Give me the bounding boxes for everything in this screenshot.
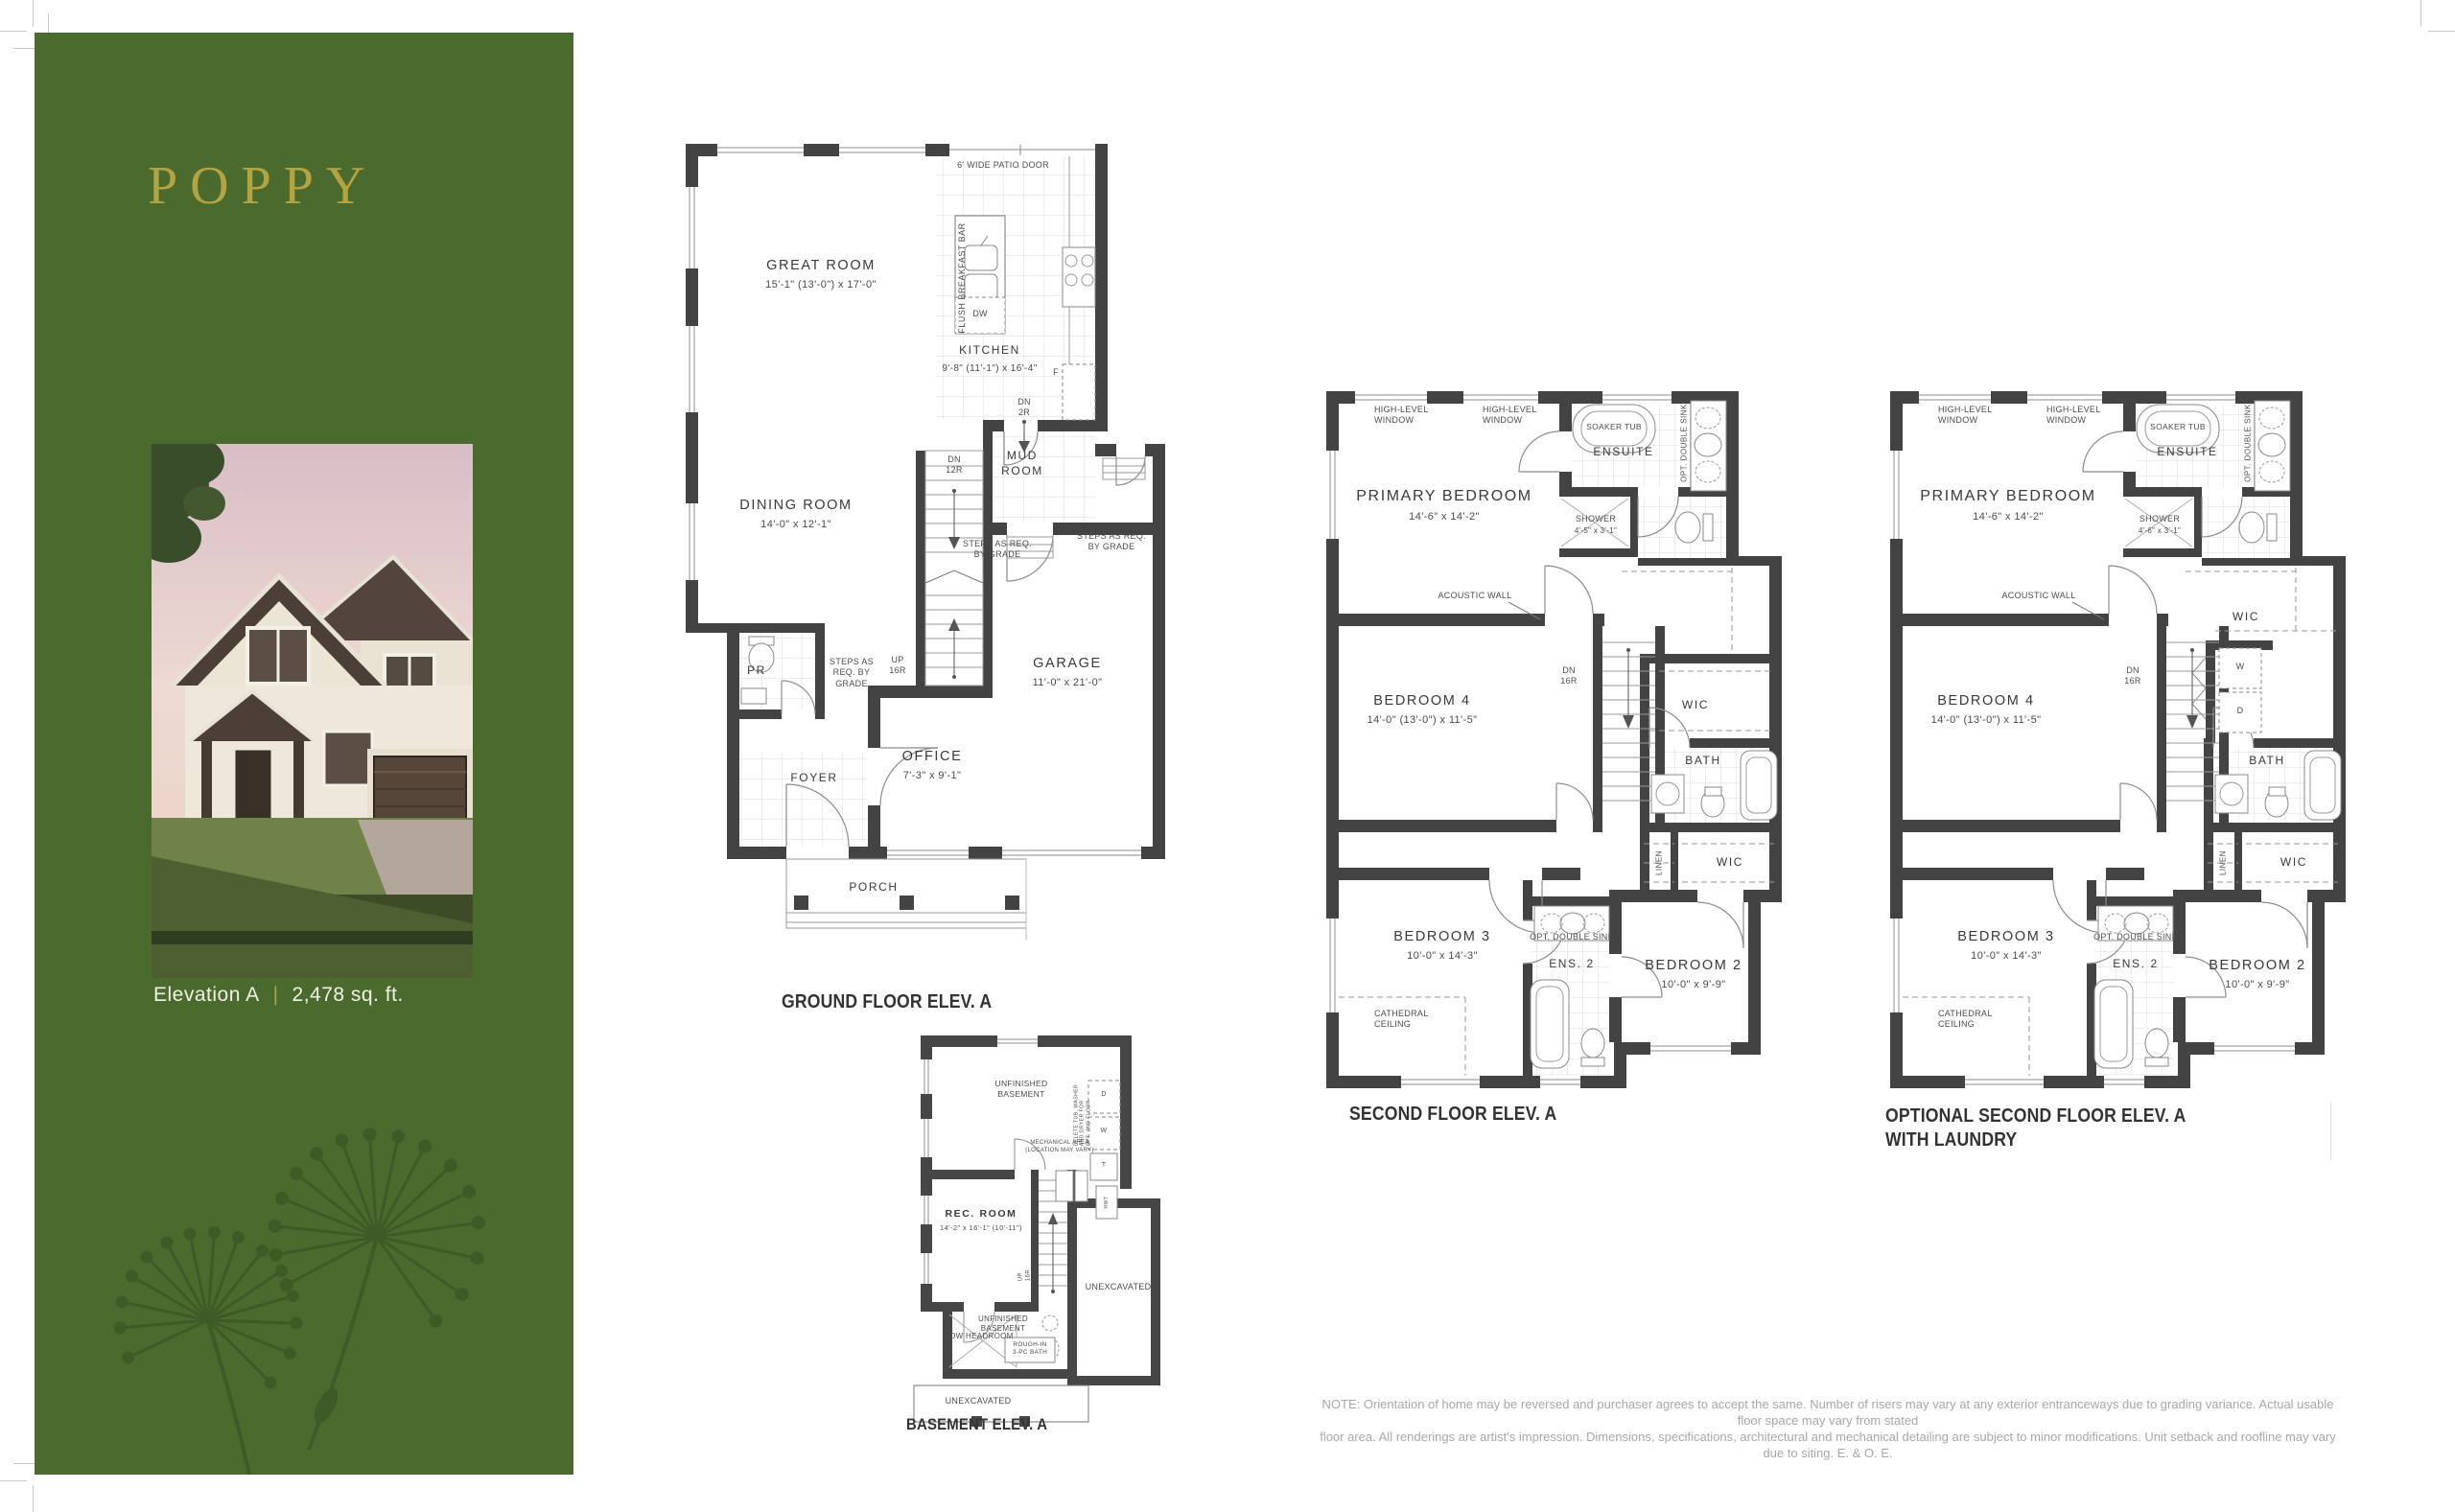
annotation-opt-double-sink: OPT. DOUBLE SINK <box>1530 932 1614 942</box>
crop-mark <box>2428 31 2455 32</box>
room-dims-bedroom4: 14'-0" (13'-0") x 11'-5" <box>1931 713 2042 727</box>
disclaimer-note: NOTE: Orientation of home may be reverse… <box>1316 1396 2340 1461</box>
room-dims-shower: 4'-5" x 3'-1" <box>1575 526 1617 536</box>
annotation-cathedral-ceiling: CATHEDRAL CEILING <box>1374 1009 1429 1031</box>
annotation-patio-door: 6' WIDE PATIO DOOR <box>957 160 1049 171</box>
annotation-breakfast-bar: FLUSH BREAKFAST BAR <box>957 222 967 333</box>
room-dims-bedroom3: 10'-0" x 14'-3" <box>1407 949 1478 963</box>
annotation-opt-double-sink-v: OPT. DOUBLE SINK <box>2244 404 2253 482</box>
room-label-shower: SHOWER <box>2139 514 2180 524</box>
annotation-laundry-note: DELETE TUB, WASHER AND DRYER FOR OPT. 2N… <box>1074 1084 1092 1146</box>
annotation-dn-16r: DN 16R <box>2124 665 2140 687</box>
plan-caption-basement: BASEMENT ELEV. A <box>906 1414 1047 1434</box>
room-label-bedroom3: BEDROOM 3 <box>1957 928 2054 946</box>
room-label-linen: LINEN <box>1655 850 1664 875</box>
annotation-high-level-window-2: HIGH-LEVEL WINDOW <box>2046 405 2101 427</box>
room-label-shower: SHOWER <box>1576 514 1616 524</box>
room-label-ens2: ENS. 2 <box>2113 957 2159 972</box>
annotation-low-headroom: LOW HEADROOM <box>945 1332 1013 1341</box>
brochure-page: POPPY <box>0 0 2455 1512</box>
room-label-unexcavated-right: UNEXCAVATED <box>1086 1282 1152 1292</box>
room-dims-bedroom2: 10'-0" x 9'-9" <box>1661 978 1725 991</box>
room-label-pr: PR <box>747 663 766 679</box>
room-label-bedroom2: BEDROOM 2 <box>1645 957 1742 975</box>
label-washer: W <box>2236 662 2245 672</box>
annotation-dn-16r: DN 16R <box>1560 665 1577 687</box>
room-label-bedroom4: BEDROOM 4 <box>1373 692 1470 710</box>
crop-mark <box>33 0 34 27</box>
annotation-high-level-window-1: HIGH-LEVEL WINDOW <box>1374 405 1429 427</box>
dandelion-head <box>269 1128 485 1328</box>
room-label-foyer: FOYER <box>790 771 837 786</box>
annotation-fridge: F <box>1053 367 1059 378</box>
annotation-steps-mud: STEPS AS REQ. BY GRADE <box>963 539 1032 561</box>
stove-icon <box>1063 247 1095 307</box>
sink-icon <box>741 688 766 704</box>
annotation-high-level-window-1: HIGH-LEVEL WINDOW <box>1938 405 1993 427</box>
annotation-acoustic-wall: ACOUSTIC WALL <box>2001 591 2075 601</box>
room-label-bath: BATH <box>2249 754 2285 769</box>
room-label-primary-bedroom: PRIMARY BEDROOM <box>1920 487 2095 507</box>
second-floor-plan: HIGH-LEVEL WINDOW HIGH-LEVEL WINDOW SOAK… <box>1321 384 1806 1151</box>
annotation-cathedral-ceiling: CATHEDRAL CEILING <box>1938 1009 1993 1031</box>
room-label-unfinished-lower: UNFINISHED BASEMENT <box>978 1314 1028 1334</box>
room-label-porch: PORCH <box>849 880 898 896</box>
plan-caption-second-floor: SECOND FLOOR ELEV. A <box>1349 1103 1556 1127</box>
room-label-ensuite: ENSUITE <box>1593 445 1653 460</box>
room-label-wic: WIC <box>1682 698 1709 713</box>
label-dryer: D <box>1101 1091 1106 1100</box>
annotation-steps-garage: STEPS AS REQ. BY GRADE <box>1077 531 1146 553</box>
annotation-steps-foyer: STEPS AS REQ. BY GRADE <box>830 657 874 689</box>
disclaimer-line-1: NOTE: Orientation of home may be reverse… <box>1316 1396 2340 1429</box>
crop-mark <box>2420 0 2421 27</box>
room-dims-bedroom2: 10'-0" x 9'-9" <box>2225 978 2289 991</box>
annotation-mechanical: MECHANICAL AREA (LOCATION MAY VARY) <box>1025 1140 1094 1154</box>
annotation-dw: DW <box>972 309 988 319</box>
ground-floor-plan: GREAT ROOM 15'-1" (13'-0") x 17'-0" 6' W… <box>681 134 1194 1031</box>
annotation-up-16r: UP 16R <box>1018 1269 1033 1282</box>
plan-caption-optional-second-floor: OPTIONAL SECOND FLOOR ELEV. A WITH LAUND… <box>1885 1105 2186 1152</box>
annotation-acoustic-wall: ACOUSTIC WALL <box>1438 591 1511 601</box>
room-dims-primary-bedroom: 14'-6" x 14'-2" <box>1973 510 2044 523</box>
room-label-bedroom4: BEDROOM 4 <box>1937 692 2034 710</box>
crop-mark <box>33 1485 34 1512</box>
room-dims-office: 7'-3" x 9'-1" <box>903 769 962 782</box>
room-label-linen: LINEN <box>2219 850 2228 875</box>
annotation-soaker-tub: SOAKER TUB <box>2150 422 2206 432</box>
room-label-rec-room: REC. ROOM <box>945 1208 1017 1221</box>
annotation-high-level-window-2: HIGH-LEVEL WINDOW <box>1483 405 1537 427</box>
room-label-wic2: WIC <box>2280 855 2307 871</box>
room-dims-primary-bedroom: 14'-6" x 14'-2" <box>1409 510 1480 523</box>
left-brand-panel: POPPY <box>35 33 573 1475</box>
label-tub: T <box>1102 1162 1107 1171</box>
room-label-ensuite: ENSUITE <box>2157 445 2217 460</box>
room-label-great-room: GREAT ROOM <box>766 257 876 275</box>
room-label-wic: WIC <box>2233 610 2259 625</box>
room-label-wic2: WIC <box>1717 855 1743 871</box>
room-dims-bedroom4: 14'-0" (13'-0") x 11'-5" <box>1368 713 1478 727</box>
room-label-unfinished-basement: UNFINISHED BASEMENT <box>995 1079 1048 1099</box>
room-label-office: OFFICE <box>902 748 963 766</box>
crop-mark <box>0 31 27 32</box>
basement-plan: UNFINISHED BASEMENT DELETE TUB, WASHER A… <box>906 1031 1204 1472</box>
annotation-soaker-tub: SOAKER TUB <box>1586 422 1642 432</box>
room-dims-rec-room: 14'-2" x 16'-1" (10'-11") <box>940 1223 1022 1233</box>
room-label-bedroom3: BEDROOM 3 <box>1393 928 1490 946</box>
room-dims-great-room: 15'-1" (13'-0") x 17'-0" <box>765 278 877 291</box>
porch-outline <box>786 859 1026 928</box>
room-label-mud-room: MUD ROOM <box>1001 449 1043 478</box>
disclaimer-line-2: floor area. All renderings are artist's … <box>1316 1429 2340 1461</box>
room-dims-dining-room: 14'-0" x 12'-1" <box>760 518 831 531</box>
room-dims-bedroom3: 10'-0" x 14'-3" <box>1971 949 2042 963</box>
annotation-opt-double-sink: OPT. DOUBLE SINK <box>2093 932 2178 942</box>
annotation-opt-double-sink-v: OPT. DOUBLE SINK <box>1680 404 1689 482</box>
annotation-dn-12r: DN 12R <box>946 454 962 477</box>
annotation-rough-in: ROUGH-IN 3-PC BATH <box>1013 1341 1047 1357</box>
optional-second-floor-plan: HIGH-LEVEL WINDOW HIGH-LEVEL WINDOW SOAK… <box>1885 384 2370 1151</box>
crop-mark <box>0 1480 27 1481</box>
stairs <box>925 451 983 686</box>
room-label-bath: BATH <box>1685 754 1721 769</box>
room-label-dining-room: DINING ROOM <box>739 497 853 515</box>
room-label-garage: GARAGE <box>1033 655 1102 673</box>
roughin-sink-icon <box>1042 1315 1058 1331</box>
room-label-kitchen: KITCHEN <box>959 343 1020 359</box>
room-label-unexcavated-bottom: UNEXCAVATED <box>946 1396 1012 1407</box>
room-label-bedroom2: BEDROOM 2 <box>2209 957 2305 975</box>
label-washer: W <box>1101 1128 1108 1136</box>
room-dims-garage: 11'-0" x 21'-0" <box>1033 676 1103 689</box>
annotation-dn-2r: DN 2R <box>1017 397 1031 419</box>
label-hwt: HWT <box>1104 1197 1110 1209</box>
dandelion-decoration <box>35 33 573 1475</box>
fridge-icon <box>1063 364 1095 420</box>
room-label-ens2: ENS. 2 <box>1549 957 1595 972</box>
plan-caption-ground-floor: GROUND FLOOR ELEV. A <box>782 990 992 1014</box>
label-dryer: D <box>2237 706 2244 716</box>
room-label-primary-bedroom: PRIMARY BEDROOM <box>1356 487 1531 507</box>
room-dims-shower: 4'-6" x 3'-1" <box>2139 526 2181 536</box>
room-dims-kitchen: 9'-8" (11'-1") x 16'-4" <box>942 362 1037 375</box>
annotation-up-16r: UP 16R <box>889 655 905 677</box>
